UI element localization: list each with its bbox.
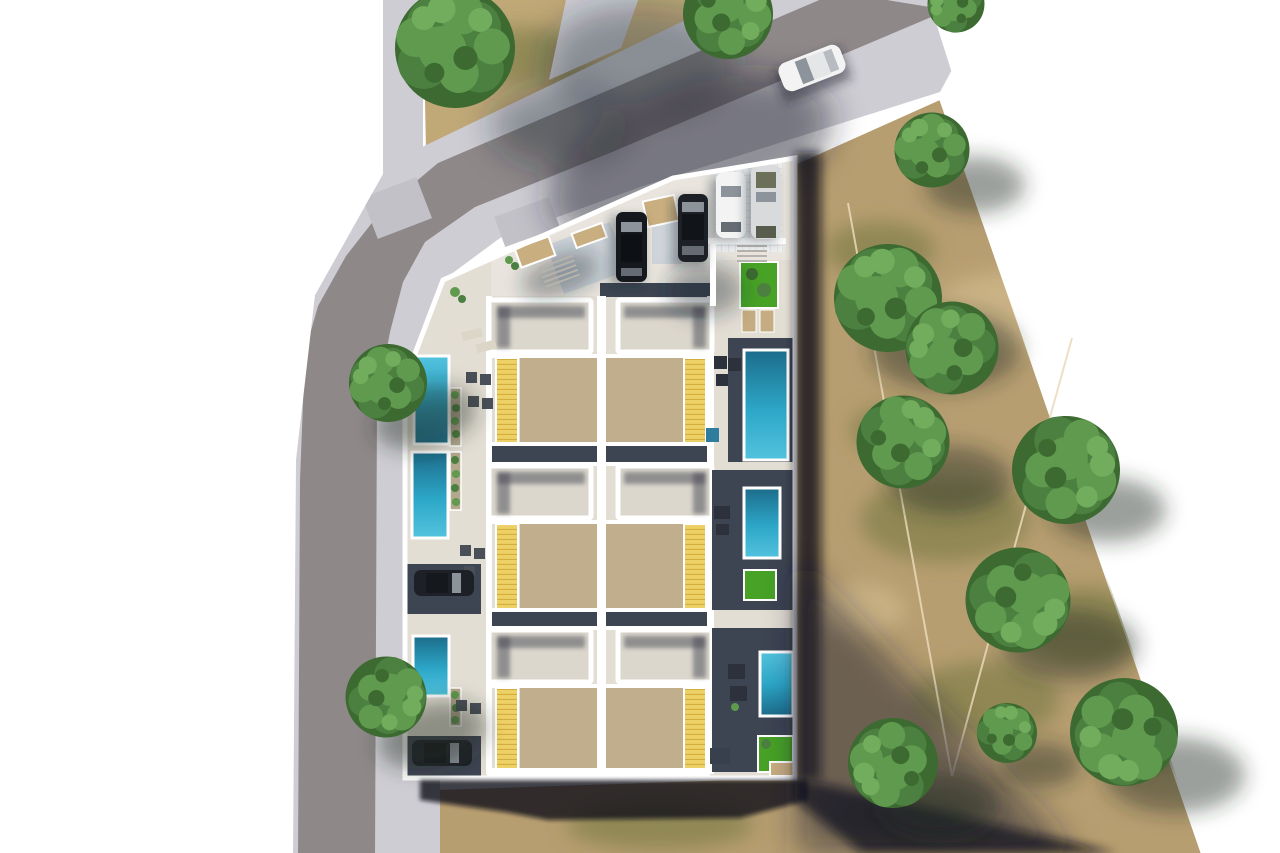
louver-pergola — [496, 358, 518, 444]
pool — [412, 452, 448, 538]
louver-pergola — [684, 688, 706, 772]
patio-chair — [728, 664, 745, 679]
patio-chair — [716, 374, 728, 386]
car-rear-window — [621, 268, 642, 276]
parked-car-dark-1 — [610, 212, 647, 286]
patio-chair — [714, 356, 727, 369]
roof-shadow — [693, 472, 706, 514]
patio-chair — [466, 372, 477, 383]
shrub — [452, 470, 460, 478]
shrub — [451, 456, 459, 464]
aerial-view-canvas — [0, 0, 1280, 853]
car-rear-window — [682, 246, 704, 255]
wall — [487, 608, 710, 612]
wall — [486, 296, 492, 774]
planter-box — [770, 762, 794, 776]
pool — [760, 652, 793, 716]
potted-plant — [731, 703, 739, 711]
parked-car-white — [710, 172, 746, 242]
patio-chair — [728, 358, 741, 371]
parked-car-dark-2 — [672, 194, 708, 266]
roof-shadow — [497, 636, 510, 678]
roof-shadow — [497, 472, 585, 484]
sun-lounger — [742, 310, 756, 332]
bush — [757, 283, 771, 297]
cooler-box — [706, 428, 719, 442]
courtyard — [520, 358, 598, 444]
lawn-patch — [740, 262, 778, 308]
louver-pergola — [684, 524, 706, 610]
bush — [761, 739, 771, 749]
car-windshield — [621, 222, 642, 232]
field-tree — [895, 113, 970, 188]
shrub — [451, 691, 459, 699]
wall — [487, 520, 710, 524]
patio-chair — [474, 548, 485, 559]
louver-pergola — [496, 524, 518, 610]
car-windshield — [756, 192, 776, 202]
wall — [487, 768, 710, 776]
car-roof — [426, 573, 448, 593]
courtyard — [606, 524, 684, 610]
patio-chair — [716, 524, 729, 535]
patio-chair — [714, 506, 730, 519]
courtyard — [520, 524, 598, 610]
patio-chair — [460, 545, 471, 556]
storage-box — [710, 748, 730, 764]
shrub — [505, 256, 513, 264]
wall — [487, 354, 710, 358]
wall — [710, 244, 716, 306]
shrub — [451, 484, 459, 492]
parked-car-silver — [745, 165, 781, 242]
canopy-shadow — [490, 85, 630, 165]
roof-shadow — [497, 472, 510, 514]
car-roof-glass — [756, 172, 776, 188]
bush — [746, 268, 758, 280]
cast-shadow — [667, 264, 743, 316]
roof-shadow — [497, 636, 585, 648]
car-windshield — [682, 202, 704, 212]
party-wall — [597, 296, 606, 774]
patio-chair — [482, 398, 493, 409]
courtyard — [606, 358, 684, 444]
site-plan-render — [0, 0, 1280, 853]
car-roof — [682, 214, 704, 240]
lawn-patch — [744, 570, 776, 600]
roof-shadow — [497, 306, 510, 348]
courtyard — [606, 688, 684, 772]
patio-chair — [730, 686, 747, 701]
wall — [487, 442, 710, 446]
car-windshield — [452, 573, 461, 593]
car-windshield — [721, 186, 741, 197]
car-rear-window — [756, 226, 776, 238]
wall — [487, 684, 710, 688]
courtyard — [520, 688, 598, 772]
car-roof — [621, 234, 642, 262]
car-rear-window — [721, 222, 741, 232]
patio-chair — [480, 374, 491, 385]
louver-pergola — [496, 688, 518, 772]
driveway-car — [414, 570, 474, 596]
roof-shadow — [693, 636, 706, 678]
shrub — [511, 262, 519, 270]
shrub — [458, 295, 466, 303]
pool — [744, 350, 788, 460]
shrub — [450, 287, 460, 297]
louver-pergola — [684, 358, 706, 444]
sun-lounger — [760, 310, 774, 332]
roof-shadow — [497, 306, 585, 318]
pool — [744, 488, 780, 558]
shrub — [452, 498, 460, 506]
